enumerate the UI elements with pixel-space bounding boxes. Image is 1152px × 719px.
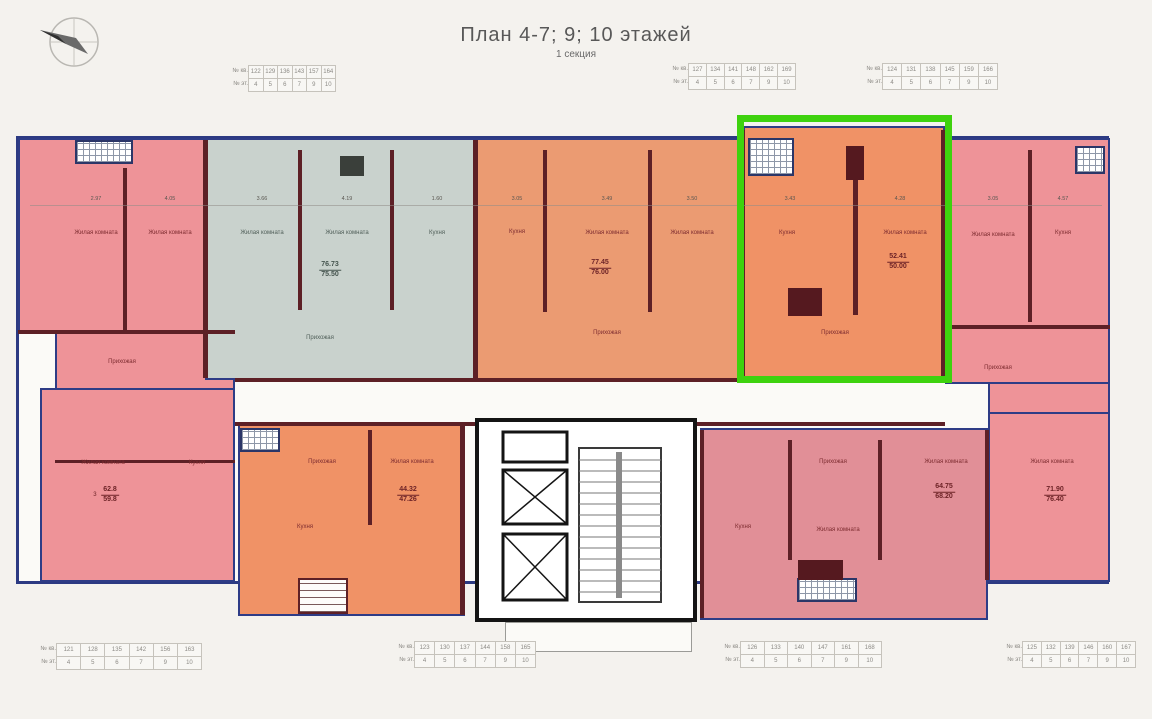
room-label: Жилая комната (148, 230, 191, 236)
room-label: Жилая комната (390, 459, 433, 465)
elevator-shaft (503, 470, 567, 524)
table-row-label: № эт. (222, 79, 249, 92)
table-cell: 7 (741, 76, 760, 90)
table-cell: 160 (1097, 641, 1117, 655)
table-cell: 126 (740, 641, 765, 655)
table-cell: 4 (1022, 654, 1042, 668)
room-label: Жилая комната (816, 527, 859, 533)
table-cell: 9 (306, 78, 322, 92)
table-cell: 9 (153, 656, 178, 670)
wall (648, 150, 652, 312)
room-label: Кухня (429, 230, 445, 236)
table-cell: 6 (1060, 654, 1080, 668)
table-cell: 142 (129, 643, 154, 657)
table-row-label: № эт. (856, 77, 883, 90)
balcony-hatch (797, 578, 857, 602)
table-cell: 145 (940, 63, 960, 77)
wall (695, 422, 945, 426)
core-stairwell (475, 418, 697, 622)
table-cell: 10 (1116, 654, 1136, 668)
wall (945, 325, 1110, 329)
table-cell: 9 (1097, 654, 1117, 668)
table-cell: 4 (688, 76, 707, 90)
area-label: 3 62.859.8 (101, 486, 119, 505)
table-cell: 131 (901, 63, 921, 77)
table-cell: 6 (724, 76, 743, 90)
unit-table-top-right: № кв.124131138145159166№ эт.4567910 (856, 64, 998, 90)
elevator-shaft (503, 534, 567, 600)
unit-table-top-left: № кв.122129136143157164№ эт.4567910 (222, 66, 336, 92)
table-cell: 6 (277, 78, 293, 92)
apartment-bottom-middle[interactable] (238, 424, 465, 616)
table-row-label: № эт. (662, 77, 689, 90)
dimension-value: 4.57 (1058, 196, 1069, 202)
table-cell: 9 (495, 654, 516, 668)
table-cell: 165 (515, 641, 536, 655)
table-cell: 141 (724, 63, 743, 77)
apartment-left-lower[interactable] (40, 388, 235, 582)
table-cell: 5 (764, 654, 789, 668)
table-cell: 135 (104, 643, 129, 657)
unit-table-bottom-3: № кв.126133140147161168№ эт.4567910 (714, 642, 882, 668)
table-cell: 136 (277, 65, 293, 79)
table-cell: 10 (777, 76, 796, 90)
wall (18, 330, 235, 334)
wall (1028, 150, 1032, 322)
table-cell: 146 (1078, 641, 1098, 655)
wall (543, 150, 547, 312)
table-cell: 162 (759, 63, 778, 77)
table-cell: 7 (129, 656, 154, 670)
wall (878, 440, 882, 560)
room-label: Кухня (297, 524, 313, 530)
room-label: Жилая комната (325, 230, 368, 236)
table-cell: 7 (940, 76, 960, 90)
staircase (579, 448, 661, 602)
shaft-block (798, 560, 843, 580)
table-cell: 159 (959, 63, 979, 77)
wall (460, 425, 465, 615)
table-cell: 6 (787, 654, 812, 668)
table-cell: 10 (515, 654, 536, 668)
area-label: 77.4576.00 (589, 259, 611, 278)
room-label: Жилая комната (240, 230, 283, 236)
table-cell: 158 (495, 641, 516, 655)
balcony-hatch (1075, 146, 1105, 174)
table-cell: 168 (858, 641, 883, 655)
table-cell: 10 (177, 656, 202, 670)
vestibule (503, 432, 567, 462)
table-cell: 7 (292, 78, 308, 92)
table-cell: 166 (978, 63, 998, 77)
table-cell: 144 (475, 641, 496, 655)
room-label: Прихожая (108, 359, 136, 365)
room-label: Жилая комната (670, 230, 713, 236)
table-cell: 137 (454, 641, 475, 655)
table-cell: 157 (306, 65, 322, 79)
table-row-label: № эт. (996, 655, 1023, 668)
dimension-value: 4.19 (342, 196, 353, 202)
table-row-label: № кв. (222, 66, 249, 79)
area-label: 64.7568.20 (933, 483, 955, 502)
table-cell: 7 (811, 654, 836, 668)
table-cell: 7 (475, 654, 496, 668)
table-cell: 143 (292, 65, 308, 79)
table-cell: 134 (706, 63, 725, 77)
selection-box[interactable] (737, 115, 952, 383)
table-cell: 9 (759, 76, 778, 90)
wall (985, 430, 989, 580)
room-label: Жилая комната (585, 230, 628, 236)
area-label: 76.7375.50 (319, 261, 341, 280)
table-cell: 4 (56, 656, 81, 670)
table-cell: 123 (414, 641, 435, 655)
wall (123, 168, 127, 332)
room-label: Жилая комната (74, 230, 117, 236)
room-label: Жилая комната (924, 459, 967, 465)
area-label: 71.9076.40 (1044, 486, 1066, 505)
room-label: Жилая комната (1030, 459, 1073, 465)
table-cell: 147 (811, 641, 836, 655)
wall (298, 150, 302, 310)
table-cell: 6 (104, 656, 129, 670)
room-label: Жилая комната (971, 232, 1014, 238)
apartment-right-bridge[interactable] (988, 382, 1110, 416)
room-label: Прихожая (308, 459, 336, 465)
room-label: Прихожая (984, 365, 1012, 371)
wall (700, 430, 704, 618)
table-cell: 140 (787, 641, 812, 655)
entry-stairs (298, 578, 348, 614)
table-cell: 139 (1060, 641, 1080, 655)
table-cell: 124 (882, 63, 902, 77)
table-cell: 148 (741, 63, 760, 77)
dimension-value: 3.05 (988, 196, 999, 202)
table-cell: 128 (80, 643, 105, 657)
table-cell: 4 (248, 78, 264, 92)
dimension-value: 2.97 (91, 196, 102, 202)
table-cell: 132 (1041, 641, 1061, 655)
table-cell: 10 (858, 654, 883, 668)
table-cell: 4 (414, 654, 435, 668)
room-label: Жилая комната (81, 460, 124, 466)
table-cell: 156 (153, 643, 178, 657)
table-cell: 10 (321, 78, 337, 92)
wall (788, 440, 792, 560)
table-cell: 6 (920, 76, 940, 90)
table-row-label: № кв. (714, 642, 741, 655)
table-row-label: № эт. (714, 655, 741, 668)
table-cell: 129 (263, 65, 279, 79)
room-label: Кухня (735, 524, 751, 530)
room-label: Прихожая (819, 459, 847, 465)
room-label: Кухня (189, 460, 205, 466)
room-label: Кухня (1055, 230, 1071, 236)
wall (368, 430, 372, 525)
shaft-block (340, 156, 364, 176)
table-row-label: № эт. (30, 657, 57, 670)
table-row-label: № кв. (662, 64, 689, 77)
room-label: Кухня (509, 229, 525, 235)
table-cell: 5 (1041, 654, 1061, 668)
table-cell: 169 (777, 63, 796, 77)
dimension-value: 3.49 (602, 196, 613, 202)
page-subtitle: 1 секция (0, 49, 1152, 60)
room-label: Прихожая (306, 335, 334, 341)
wall (235, 422, 480, 426)
dimension-value: 4.05 (165, 196, 176, 202)
table-cell: 9 (834, 654, 859, 668)
table-cell: 10 (978, 76, 998, 90)
wall (203, 140, 208, 378)
table-cell: 4 (740, 654, 765, 668)
unit-table-bottom-2: № кв.123130137144158165№ эт.4567910 (388, 642, 536, 668)
table-cell: 125 (1022, 641, 1042, 655)
table-cell: 167 (1116, 641, 1136, 655)
page-title: План 4-7; 9; 10 этажей (0, 24, 1152, 47)
table-cell: 9 (959, 76, 979, 90)
table-cell: 6 (454, 654, 475, 668)
table-cell: 7 (1078, 654, 1098, 668)
dimension-value: 3.50 (687, 196, 698, 202)
table-cell: 121 (56, 643, 81, 657)
table-cell: 133 (764, 641, 789, 655)
floor-plan-page: План 4-7; 9; 10 этажей 1 секция № кв.122… (0, 0, 1152, 719)
balcony-hatch (75, 140, 133, 164)
wall (390, 150, 394, 310)
table-cell: 161 (834, 641, 859, 655)
table-cell: 130 (434, 641, 455, 655)
table-cell: 5 (434, 654, 455, 668)
unit-table-bottom-1: № кв.121128135142156163№ эт.4567910 (30, 644, 202, 670)
table-cell: 164 (321, 65, 337, 79)
table-cell: 5 (706, 76, 725, 90)
table-row-label: № кв. (996, 642, 1023, 655)
dimension-value: 3.05 (512, 196, 523, 202)
table-cell: 4 (882, 76, 902, 90)
table-cell: 122 (248, 65, 264, 79)
balcony-hatch (240, 428, 280, 452)
room-label: Прихожая (593, 330, 621, 336)
area-label: 44.3247.26 (397, 486, 419, 505)
wall (473, 140, 478, 378)
table-row-label: № эт. (388, 655, 415, 668)
table-row-label: № кв. (30, 644, 57, 657)
table-cell: 138 (920, 63, 940, 77)
table-cell: 5 (263, 78, 279, 92)
unit-table-top-middle: № кв.127134141148162169№ эт.4567910 (662, 64, 796, 90)
table-row-label: № кв. (388, 642, 415, 655)
table-cell: 5 (80, 656, 105, 670)
table-cell: 163 (177, 643, 202, 657)
table-cell: 5 (901, 76, 921, 90)
dimension-value: 3.66 (257, 196, 268, 202)
table-row-label: № кв. (856, 64, 883, 77)
unit-table-bottom-4: № кв.125132139146160167№ эт.4567910 (996, 642, 1136, 668)
dimension-value: 1.60 (432, 196, 443, 202)
table-cell: 127 (688, 63, 707, 77)
